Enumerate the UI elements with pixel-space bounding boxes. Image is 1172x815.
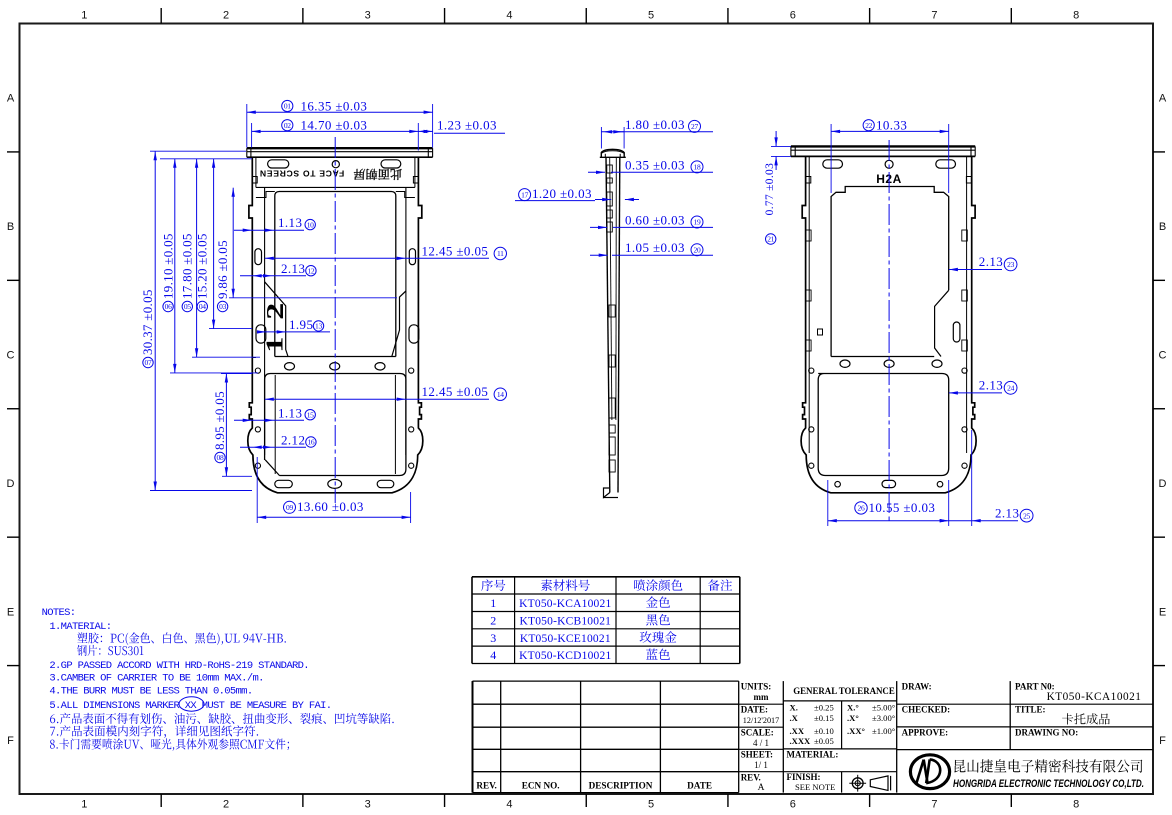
svg-text:1.95: 1.95 [289,317,313,332]
svg-text:KT050-KCB10021: KT050-KCB10021 [519,616,611,628]
svg-text:5: 5 [648,799,654,811]
svg-text:±0.05: ±0.05 [814,736,834,746]
svg-text:mm: mm [754,692,769,702]
svg-text:6: 6 [790,10,796,22]
svg-text:2.13: 2.13 [979,254,1003,269]
svg-text:02: 02 [284,121,291,130]
svg-text:04: 04 [199,302,206,311]
svg-text:03: 03 [219,302,226,311]
svg-text:3: 3 [365,10,371,22]
svg-text:1.MATERIAL:: 1.MATERIAL: [49,621,111,633]
svg-text:10.55 ±0.03: 10.55 ±0.03 [869,500,936,515]
svg-text:17: 17 [521,190,528,199]
svg-text:GENERAL TOLERANCE: GENERAL TOLERANCE [793,686,895,696]
svg-text:2.GP PASSED ACCORD WITH HRD-Ro: 2.GP PASSED ACCORD WITH HRD-RoHS-219 STA… [49,660,309,672]
svg-text:±0.15: ±0.15 [814,713,834,723]
svg-text:PART N0:: PART N0: [1015,681,1055,691]
svg-text:KT050-KCA10021: KT050-KCA10021 [519,598,611,610]
svg-text:.X°: .X° [847,713,859,723]
svg-text:10: 10 [307,220,314,229]
svg-text:REV.: REV. [476,781,497,791]
svg-text:DRAW:: DRAW: [902,682,932,692]
svg-text:17.80 ±0.05: 17.80 ±0.05 [180,233,195,299]
svg-text:5.ALL DIMENSIONS MARKER XX M: 5.ALL DIMENSIONS MARKER XX MUST BE MEASU… [49,700,331,712]
svg-text:HONGRIDA ELECTRONIC TECHNOLOGY: HONGRIDA ELECTRONIC TECHNOLOGY CO,LTD. [953,778,1144,790]
svg-text:14: 14 [497,390,504,399]
svg-text:A: A [758,783,765,793]
svg-text:X.°: X.° [847,703,859,713]
svg-text:9.86 ±0.05: 9.86 ±0.05 [215,240,230,299]
svg-text:14.70 ±0.03: 14.70 ±0.03 [301,118,368,133]
svg-text:7: 7 [931,799,937,811]
svg-text:DATE:: DATE: [741,705,768,715]
svg-text:MATERIAL:: MATERIAL: [787,750,839,760]
svg-text:18: 18 [694,163,701,172]
svg-text:SCALE:: SCALE: [741,727,774,737]
svg-text:KT050-KCA10021: KT050-KCA10021 [1047,691,1142,703]
svg-text:B: B [7,221,14,233]
svg-text:21: 21 [767,235,774,244]
svg-text:3: 3 [365,799,371,811]
svg-text:0.77 ±0.03: 0.77 ±0.03 [764,163,776,215]
svg-text:TITLE:: TITLE: [1015,705,1046,715]
svg-text:±0.25: ±0.25 [814,703,834,713]
svg-text:4: 4 [506,799,512,811]
svg-text:25: 25 [1023,511,1030,520]
svg-text:E: E [7,606,14,618]
svg-text:1: 1 [81,799,87,811]
svg-text:15.20 ±0.05: 15.20 ±0.05 [195,233,210,299]
svg-text:±1.00°: ±1.00° [872,726,896,736]
svg-text:KT050-KCD10021: KT050-KCD10021 [519,650,611,662]
svg-text:01: 01 [284,102,291,111]
svg-text:24: 24 [1007,384,1014,393]
svg-text:19.10 ±0.05: 19.10 ±0.05 [160,233,175,299]
svg-text:3: 3 [490,631,496,645]
svg-text:16.35 ±0.03: 16.35 ±0.03 [301,98,368,113]
svg-text:8: 8 [1073,10,1079,22]
svg-text:15: 15 [307,410,314,419]
svg-text:12: 12 [307,266,314,275]
svg-text:B: B [1159,221,1166,233]
svg-text:11: 11 [497,249,504,258]
svg-text:NOTES:: NOTES: [42,607,76,619]
svg-text:23: 23 [1007,260,1014,269]
svg-text:12/12'2017: 12/12'2017 [743,716,780,725]
svg-text:APPROVE:: APPROVE: [902,727,949,737]
svg-text:13: 13 [315,322,322,331]
svg-text:REV.: REV. [741,773,761,783]
svg-text:SEE NOTE: SEE NOTE [795,782,835,792]
svg-text:DESCRIPTION: DESCRIPTION [589,781,653,791]
svg-text:KT050-KCE10021: KT050-KCE10021 [520,633,611,645]
svg-text:A: A [1159,93,1167,105]
svg-text:09: 09 [286,503,293,512]
svg-text:20: 20 [694,246,701,255]
svg-text:10.33: 10.33 [876,118,907,133]
svg-text:6: 6 [790,799,796,811]
svg-text:2.13: 2.13 [979,378,1003,393]
svg-text:2: 2 [490,614,496,628]
svg-text:5: 5 [648,10,654,22]
svg-text:1.13: 1.13 [278,215,302,230]
svg-text:0.35 ±0.03: 0.35 ±0.03 [625,157,685,172]
svg-text:1.13: 1.13 [278,405,302,420]
svg-text:DRAWING NO:: DRAWING NO: [1015,727,1078,737]
svg-text:4.THE BURR MUST BE LESS THAN 0: 4.THE BURR MUST BE LESS THAN 0.05mm. [49,686,252,698]
svg-text:08: 08 [217,453,224,462]
svg-text:13.60 ±0.03: 13.60 ±0.03 [297,499,364,514]
svg-text:.XXX: .XXX [790,736,812,746]
svg-text:DATE: DATE [687,781,712,791]
svg-text:FINISH:: FINISH: [787,772,821,782]
svg-text:E: E [1159,606,1166,618]
svg-text:D: D [7,478,15,490]
svg-text:12.45 ±0.05: 12.45 ±0.05 [422,384,489,399]
svg-text:06: 06 [165,302,172,311]
svg-text:.XX°: .XX° [847,726,866,736]
svg-text:4: 4 [490,648,496,662]
svg-text:27: 27 [691,122,698,131]
svg-text:2.13: 2.13 [281,261,305,276]
svg-text:1.23 ±0.03: 1.23 ±0.03 [437,118,497,133]
svg-text:2.12: 2.12 [281,432,305,447]
svg-text:±5.00°: ±5.00° [872,703,896,713]
svg-text:X.: X. [790,703,798,713]
svg-text:1: 1 [81,10,87,22]
svg-text:.X: .X [790,713,799,723]
svg-text:1.05 ±0.03: 1.05 ±0.03 [625,240,685,255]
svg-text:05: 05 [184,302,191,311]
svg-text:4: 4 [506,10,512,22]
svg-text:2: 2 [263,303,289,320]
svg-text:FACE TO SCREEN: FACE TO SCREEN [259,169,344,179]
svg-text:12.45 ±0.05: 12.45 ±0.05 [422,243,489,258]
svg-text:CHECKED:: CHECKED: [902,705,951,715]
svg-text:±3.00°: ±3.00° [872,713,896,723]
svg-text:.XX: .XX [790,726,805,736]
svg-text:2: 2 [223,799,229,811]
svg-text:A: A [7,93,15,105]
svg-text:8: 8 [1073,799,1079,811]
svg-text:F: F [7,735,14,747]
svg-text:4 / 1: 4 / 1 [753,738,769,748]
svg-text:07: 07 [145,358,152,367]
svg-text:1.80 ±0.03: 1.80 ±0.03 [625,117,685,132]
svg-text:7: 7 [931,10,937,22]
svg-text:C: C [7,350,15,362]
svg-text:30.37 ±0.05: 30.37 ±0.05 [140,289,155,355]
svg-text:1.20 ±0.03: 1.20 ±0.03 [532,186,592,201]
svg-text:C: C [1159,350,1167,362]
svg-text:8.95 ±0.05: 8.95 ±0.05 [212,391,227,450]
svg-text:±0.10: ±0.10 [814,726,834,736]
svg-text:1/ 1: 1/ 1 [754,760,768,770]
svg-text:2.13: 2.13 [995,505,1019,520]
svg-text:3.CAMBER OF CARRIER TO BE 10mm: 3.CAMBER OF CARRIER TO BE 10mm MAX./m. [49,673,263,685]
svg-text:D: D [1159,478,1167,490]
svg-text:0.60 ±0.03: 0.60 ±0.03 [625,212,685,227]
svg-text:26: 26 [858,504,865,513]
svg-text:22: 22 [865,121,872,130]
svg-text:UNITS:: UNITS: [741,682,772,692]
svg-text:2: 2 [223,10,229,22]
svg-text:19: 19 [694,218,701,227]
svg-text:1: 1 [262,337,288,353]
svg-text:ECN NO.: ECN NO. [522,781,560,791]
svg-text:1: 1 [490,596,496,610]
svg-text:SHEET:: SHEET: [741,750,773,760]
svg-text:16: 16 [307,438,314,447]
svg-text:F: F [1159,735,1166,747]
